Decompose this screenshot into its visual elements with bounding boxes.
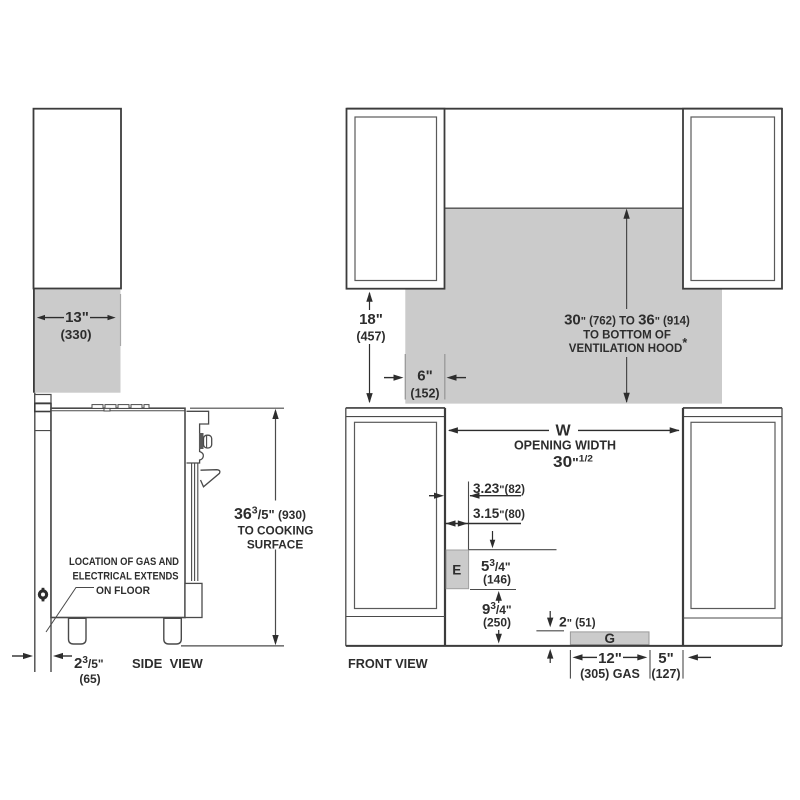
- svg-text:FRONT VIEW: FRONT VIEW: [348, 657, 428, 671]
- svg-text:ON FLOOR: ON FLOOR: [96, 585, 150, 597]
- svg-text:SIDE VIEW: SIDE VIEW: [132, 656, 204, 671]
- svg-text:(305) GAS: (305) GAS: [580, 667, 640, 681]
- svg-text:G: G: [604, 631, 615, 646]
- svg-text:5": 5": [658, 650, 673, 667]
- svg-text:E: E: [452, 563, 461, 578]
- svg-text:ELECTRICAL EXTENDS: ELECTRICAL EXTENDS: [73, 571, 179, 583]
- svg-text:(250): (250): [483, 616, 511, 630]
- svg-text:3.15"(80): 3.15"(80): [473, 506, 525, 521]
- svg-text:SURFACE: SURFACE: [247, 538, 304, 552]
- svg-text:13": 13": [65, 309, 89, 326]
- svg-text:LOCATION OF GAS AND: LOCATION OF GAS AND: [69, 556, 179, 568]
- svg-text:(65): (65): [79, 672, 100, 686]
- svg-text:TO COOKING: TO COOKING: [238, 524, 314, 538]
- svg-text:OPENING WIDTH: OPENING WIDTH: [514, 439, 616, 453]
- svg-text:W: W: [555, 423, 571, 440]
- svg-text:6": 6": [417, 368, 432, 385]
- svg-text:23/5": 23/5": [74, 655, 104, 672]
- svg-text:(146): (146): [483, 573, 511, 587]
- svg-text:18": 18": [359, 311, 383, 328]
- svg-text:TO BOTTOM OF: TO BOTTOM OF: [583, 330, 671, 342]
- svg-text:(127): (127): [651, 667, 680, 681]
- svg-text:(457): (457): [356, 330, 385, 344]
- svg-text:3.23"(82): 3.23"(82): [473, 481, 525, 496]
- svg-text:12": 12": [598, 650, 622, 667]
- svg-text:(152): (152): [410, 387, 439, 401]
- svg-text:363/5" (930): 363/5" (930): [234, 505, 306, 524]
- svg-text:(330): (330): [61, 328, 92, 342]
